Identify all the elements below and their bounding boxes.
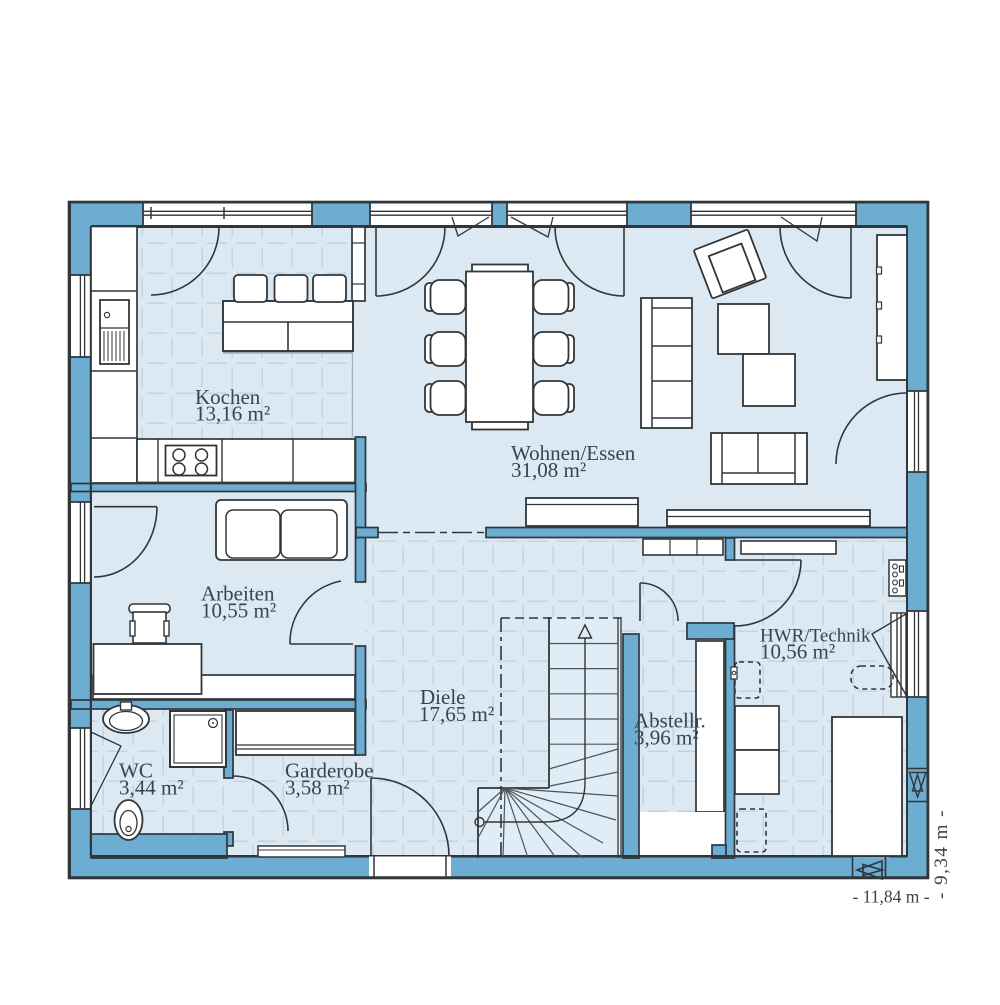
svg-text:3,96 m²: 3,96 m²	[634, 726, 699, 750]
svg-text:3,58 m²: 3,58 m²	[285, 776, 350, 800]
svg-text:- 9,34 m -: - 9,34 m -	[931, 809, 952, 899]
svg-text:10,55 m²: 10,55 m²	[201, 599, 276, 623]
svg-text:3,44 m²: 3,44 m²	[119, 776, 184, 800]
svg-text:13,16 m²: 13,16 m²	[195, 402, 270, 426]
svg-text:10,56 m²: 10,56 m²	[760, 640, 835, 664]
svg-text:17,65 m²: 17,65 m²	[419, 702, 494, 726]
svg-text:31,08 m²: 31,08 m²	[511, 458, 586, 482]
svg-text:- 11,84 m -: - 11,84 m -	[852, 887, 929, 907]
